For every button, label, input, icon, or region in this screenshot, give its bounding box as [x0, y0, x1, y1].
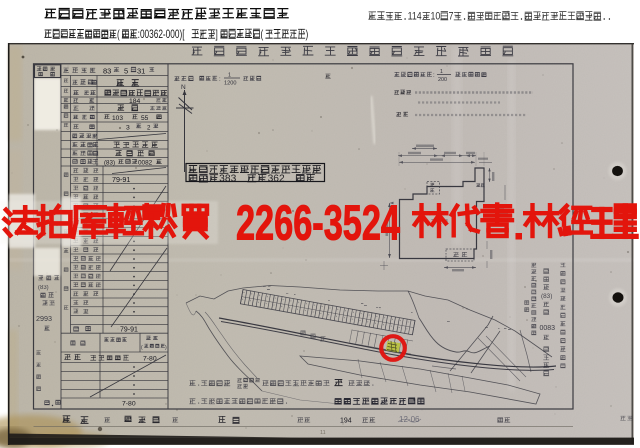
svg-text:79-91: 79-91 [120, 327, 138, 334]
svg-text:200: 200 [438, 77, 447, 83]
svg-text:362: 362 [268, 174, 285, 185]
svg-text:3: 3 [126, 125, 130, 132]
svg-text:5: 5 [124, 67, 128, 76]
svg-text:7-80: 7-80 [122, 400, 136, 407]
svg-text:): ) [306, 29, 309, 42]
svg-text:1: 1 [228, 73, 231, 79]
svg-text:7: 7 [449, 11, 454, 23]
svg-text:2: 2 [147, 125, 151, 132]
svg-text:(83): (83) [541, 293, 552, 300]
svg-text:0082: 0082 [138, 160, 153, 167]
svg-text:83: 83 [103, 67, 111, 76]
svg-text:383: 383 [219, 174, 236, 185]
svg-text:2266-3524: 2266-3524 [236, 195, 400, 249]
svg-text:114: 114 [408, 11, 422, 23]
svg-text:10: 10 [431, 11, 441, 23]
svg-text:11: 11 [320, 430, 326, 436]
svg-text:N: N [181, 84, 186, 91]
svg-text:]: ] [216, 29, 218, 42]
svg-text:1200: 1200 [224, 81, 236, 87]
svg-text:103: 103 [112, 115, 123, 122]
svg-text:55: 55 [141, 115, 149, 122]
svg-text:184: 184 [129, 98, 141, 105]
svg-text:0083: 0083 [540, 325, 556, 332]
svg-text:(83): (83) [38, 285, 49, 291]
svg-text:79-91: 79-91 [112, 175, 130, 184]
svg-text:(83): (83) [104, 160, 115, 167]
svg-text:1: 1 [440, 69, 443, 75]
svg-text::00362-000)[: :00362-000)[ [138, 29, 185, 42]
svg-text:31: 31 [137, 67, 145, 76]
svg-text:194: 194 [340, 418, 352, 425]
svg-text:2993: 2993 [36, 314, 52, 323]
